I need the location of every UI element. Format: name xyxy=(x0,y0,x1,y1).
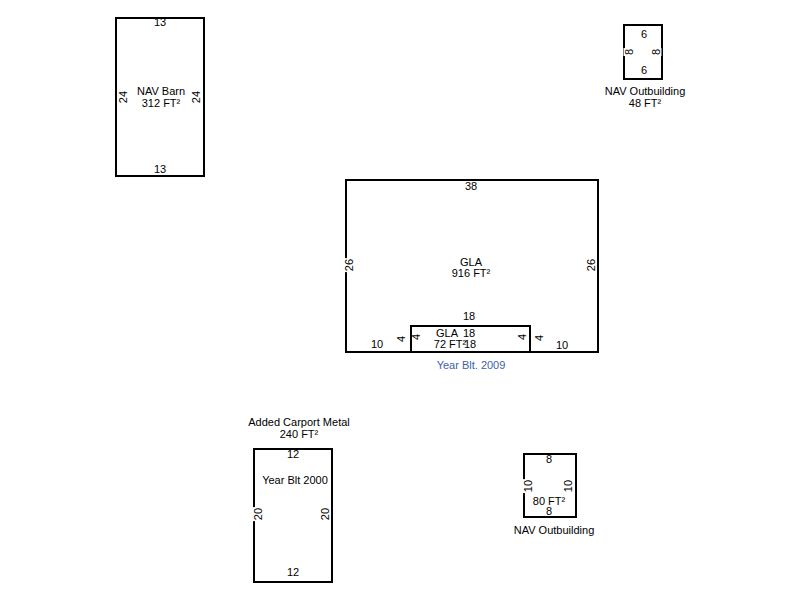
gla-addition-dim-right-inner: 4 xyxy=(517,334,528,340)
outbuilding-bottom-dim-top: 8 xyxy=(546,454,552,465)
carport-title-area: 240 FT² xyxy=(248,428,350,440)
carport-title-name: Added Carport Metal xyxy=(248,416,350,428)
outbuilding-bottom-dim-bottom: 8 xyxy=(546,506,552,517)
gla-main-dim-bottom-right: 10 xyxy=(556,340,568,351)
outbuilding-top-caption: NAV Outbuilding 48 FT² xyxy=(605,85,686,109)
outbuilding-top-caption-area: 48 FT² xyxy=(605,97,686,109)
gla-addition-dim-right-outer: 4 xyxy=(534,334,545,342)
outbuilding-bottom-dim-left: 10 xyxy=(523,479,534,493)
barn-dim-bottom: 13 xyxy=(154,164,166,175)
outbuilding-bottom-dim-right: 10 xyxy=(563,479,574,493)
gla-main-area: 916 FT² xyxy=(452,268,491,279)
outbuilding-bottom-caption: NAV Outbuilding xyxy=(514,525,595,536)
carport-dim-right: 20 xyxy=(320,507,331,521)
gla-main-year-built: Year Blt. 2009 xyxy=(437,360,506,371)
carport-title: Added Carport Metal 240 FT² xyxy=(248,416,350,440)
outbuilding-top-caption-name: NAV Outbuilding xyxy=(605,85,686,97)
gla-main-dim-bottom-left: 10 xyxy=(371,339,383,350)
gla-main-dim-left: 26 xyxy=(344,258,355,272)
barn-name: NAV Barn xyxy=(137,85,185,97)
barn-dim-right: 24 xyxy=(191,90,202,104)
barn-area: 312 FT² xyxy=(137,97,185,109)
carport-year-built: Year Blt 2000 xyxy=(262,475,328,486)
sketch-canvas: 13 24 24 13 NAV Barn 312 FT² 6 8 8 6 NAV… xyxy=(0,0,800,600)
outbuilding-top-dim-top: 6 xyxy=(641,29,647,40)
outbuilding-top-dim-left: 8 xyxy=(624,48,635,56)
gla-addition-dim-top-outer: 18 xyxy=(463,311,475,322)
gla-addition-dim-left-inner: 4 xyxy=(411,334,422,340)
barn-dim-top: 13 xyxy=(154,17,166,28)
carport-dim-top: 12 xyxy=(287,449,299,460)
outbuilding-top-dim-right: 8 xyxy=(651,48,662,56)
carport-dim-bottom: 12 xyxy=(287,567,299,578)
gla-addition-dim-bottom-inner: 18 xyxy=(464,339,476,350)
carport-dim-left: 20 xyxy=(253,507,264,521)
gla-main-dim-right: 26 xyxy=(586,258,597,272)
outbuilding-top-dim-bottom: 6 xyxy=(641,65,647,76)
gla-addition-dim-left-outer: 4 xyxy=(396,335,407,343)
barn-label: NAV Barn 312 FT² xyxy=(137,85,185,109)
gla-addition-area: 72 FT² xyxy=(434,339,466,350)
gla-main-dim-top: 38 xyxy=(465,181,477,192)
gla-main-label: GLA 916 FT² xyxy=(452,257,491,279)
barn-dim-left: 24 xyxy=(118,90,129,104)
